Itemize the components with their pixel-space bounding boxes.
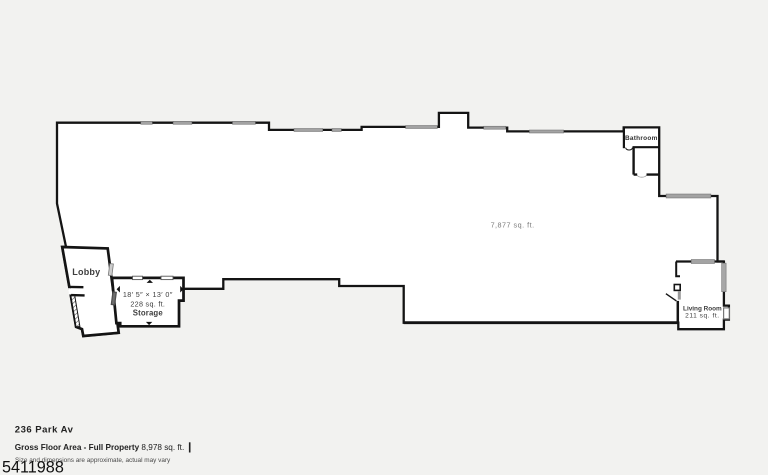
svg-text:7,877 sq. ft.: 7,877 sq. ft.: [491, 220, 535, 229]
svg-text:18′ 5″ × 13′ 0″: 18′ 5″ × 13′ 0″: [123, 290, 173, 299]
svg-text:Storage: Storage: [133, 308, 164, 317]
svg-text:5411988: 5411988: [2, 458, 64, 475]
svg-text:Bathroom: Bathroom: [625, 135, 658, 142]
svg-text:Living Room: Living Room: [683, 305, 722, 312]
svg-text:Lobby: Lobby: [72, 267, 100, 277]
svg-text:211 sq. ft.: 211 sq. ft.: [685, 313, 720, 320]
svg-text:228 sq. ft.: 228 sq. ft.: [130, 300, 165, 309]
svg-text:Gross Floor Area - Full Proper: Gross Floor Area - Full Property 8,978 s…: [15, 443, 184, 452]
svg-text:236 Park Av: 236 Park Av: [15, 424, 74, 435]
